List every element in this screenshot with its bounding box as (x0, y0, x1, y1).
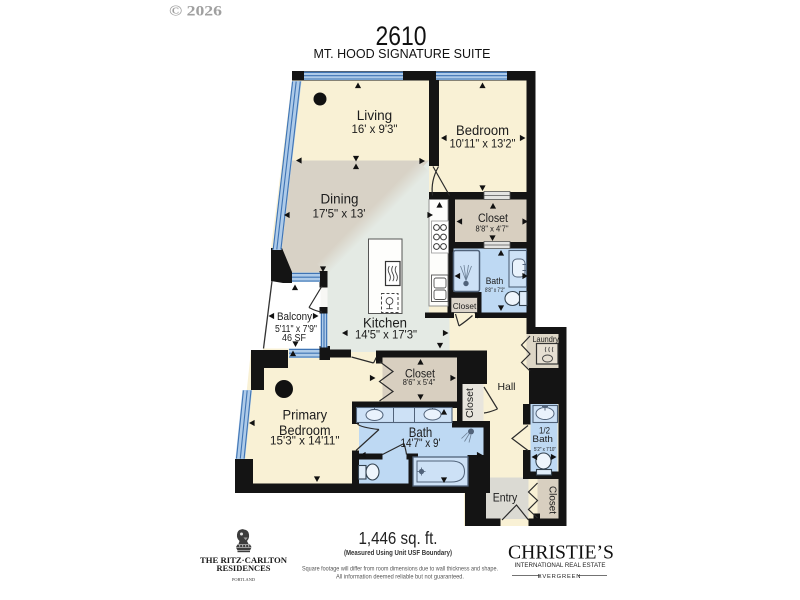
svg-text:Bath: Bath (532, 434, 553, 445)
svg-text:5'2" x 7'10": 5'2" x 7'10" (534, 447, 556, 453)
svg-text:15'3" x 14'11": 15'3" x 14'11" (270, 434, 340, 448)
svg-text:Bath: Bath (486, 276, 504, 287)
svg-text:© 2026: © 2026 (169, 4, 222, 20)
svg-text:14'5" x 17'3": 14'5" x 17'3" (355, 328, 417, 342)
svg-text:46 SF: 46 SF (282, 333, 306, 344)
svg-text:8'6" x 5'4": 8'6" x 5'4" (403, 377, 436, 387)
svg-text:Closet: Closet (547, 486, 558, 514)
svg-text:Balcony: Balcony (277, 311, 312, 323)
svg-text:10'11" x 13'2": 10'11" x 13'2" (450, 137, 516, 151)
svg-text:1,446 sq. ft.: 1,446 sq. ft. (359, 528, 438, 548)
svg-text:(Measured Using Unit USF Bound: (Measured Using Unit USF Boundary) (344, 548, 452, 557)
svg-text:EVERGREEN: EVERGREEN (538, 574, 582, 580)
svg-text:8'8" x 4'7": 8'8" x 4'7" (476, 224, 509, 234)
svg-text:Primary: Primary (283, 407, 328, 423)
svg-text:RESIDENCES: RESIDENCES (217, 564, 271, 573)
svg-text:PORTLAND: PORTLAND (232, 577, 256, 582)
svg-text:CHRISTIE’S: CHRISTIE’S (508, 542, 614, 564)
svg-text:16' x 9'3": 16' x 9'3" (352, 122, 398, 136)
svg-text:Laundry: Laundry (532, 334, 559, 344)
svg-text:MT. HOOD SIGNATURE SUITE: MT. HOOD SIGNATURE SUITE (314, 46, 491, 61)
svg-text:Dining: Dining (321, 191, 359, 207)
svg-text:All information deemed reliabl: All information deemed reliable but not … (336, 574, 464, 581)
svg-text:Closet: Closet (465, 388, 476, 418)
svg-text:Entry: Entry (493, 493, 518, 505)
svg-text:Closet: Closet (453, 301, 477, 311)
svg-text:Square footage will differ fro: Square footage will differ from room dim… (302, 566, 498, 573)
svg-text:Living: Living (357, 107, 393, 123)
svg-text:14'7" x 9': 14'7" x 9' (401, 436, 441, 450)
svg-text:17'5" x 13': 17'5" x 13' (313, 207, 366, 221)
svg-text:Hall: Hall (498, 381, 516, 393)
svg-text:8'8" x 7'2": 8'8" x 7'2" (485, 287, 505, 294)
svg-text:INTERNATIONAL REAL ESTATE: INTERNATIONAL REAL ESTATE (515, 562, 606, 569)
